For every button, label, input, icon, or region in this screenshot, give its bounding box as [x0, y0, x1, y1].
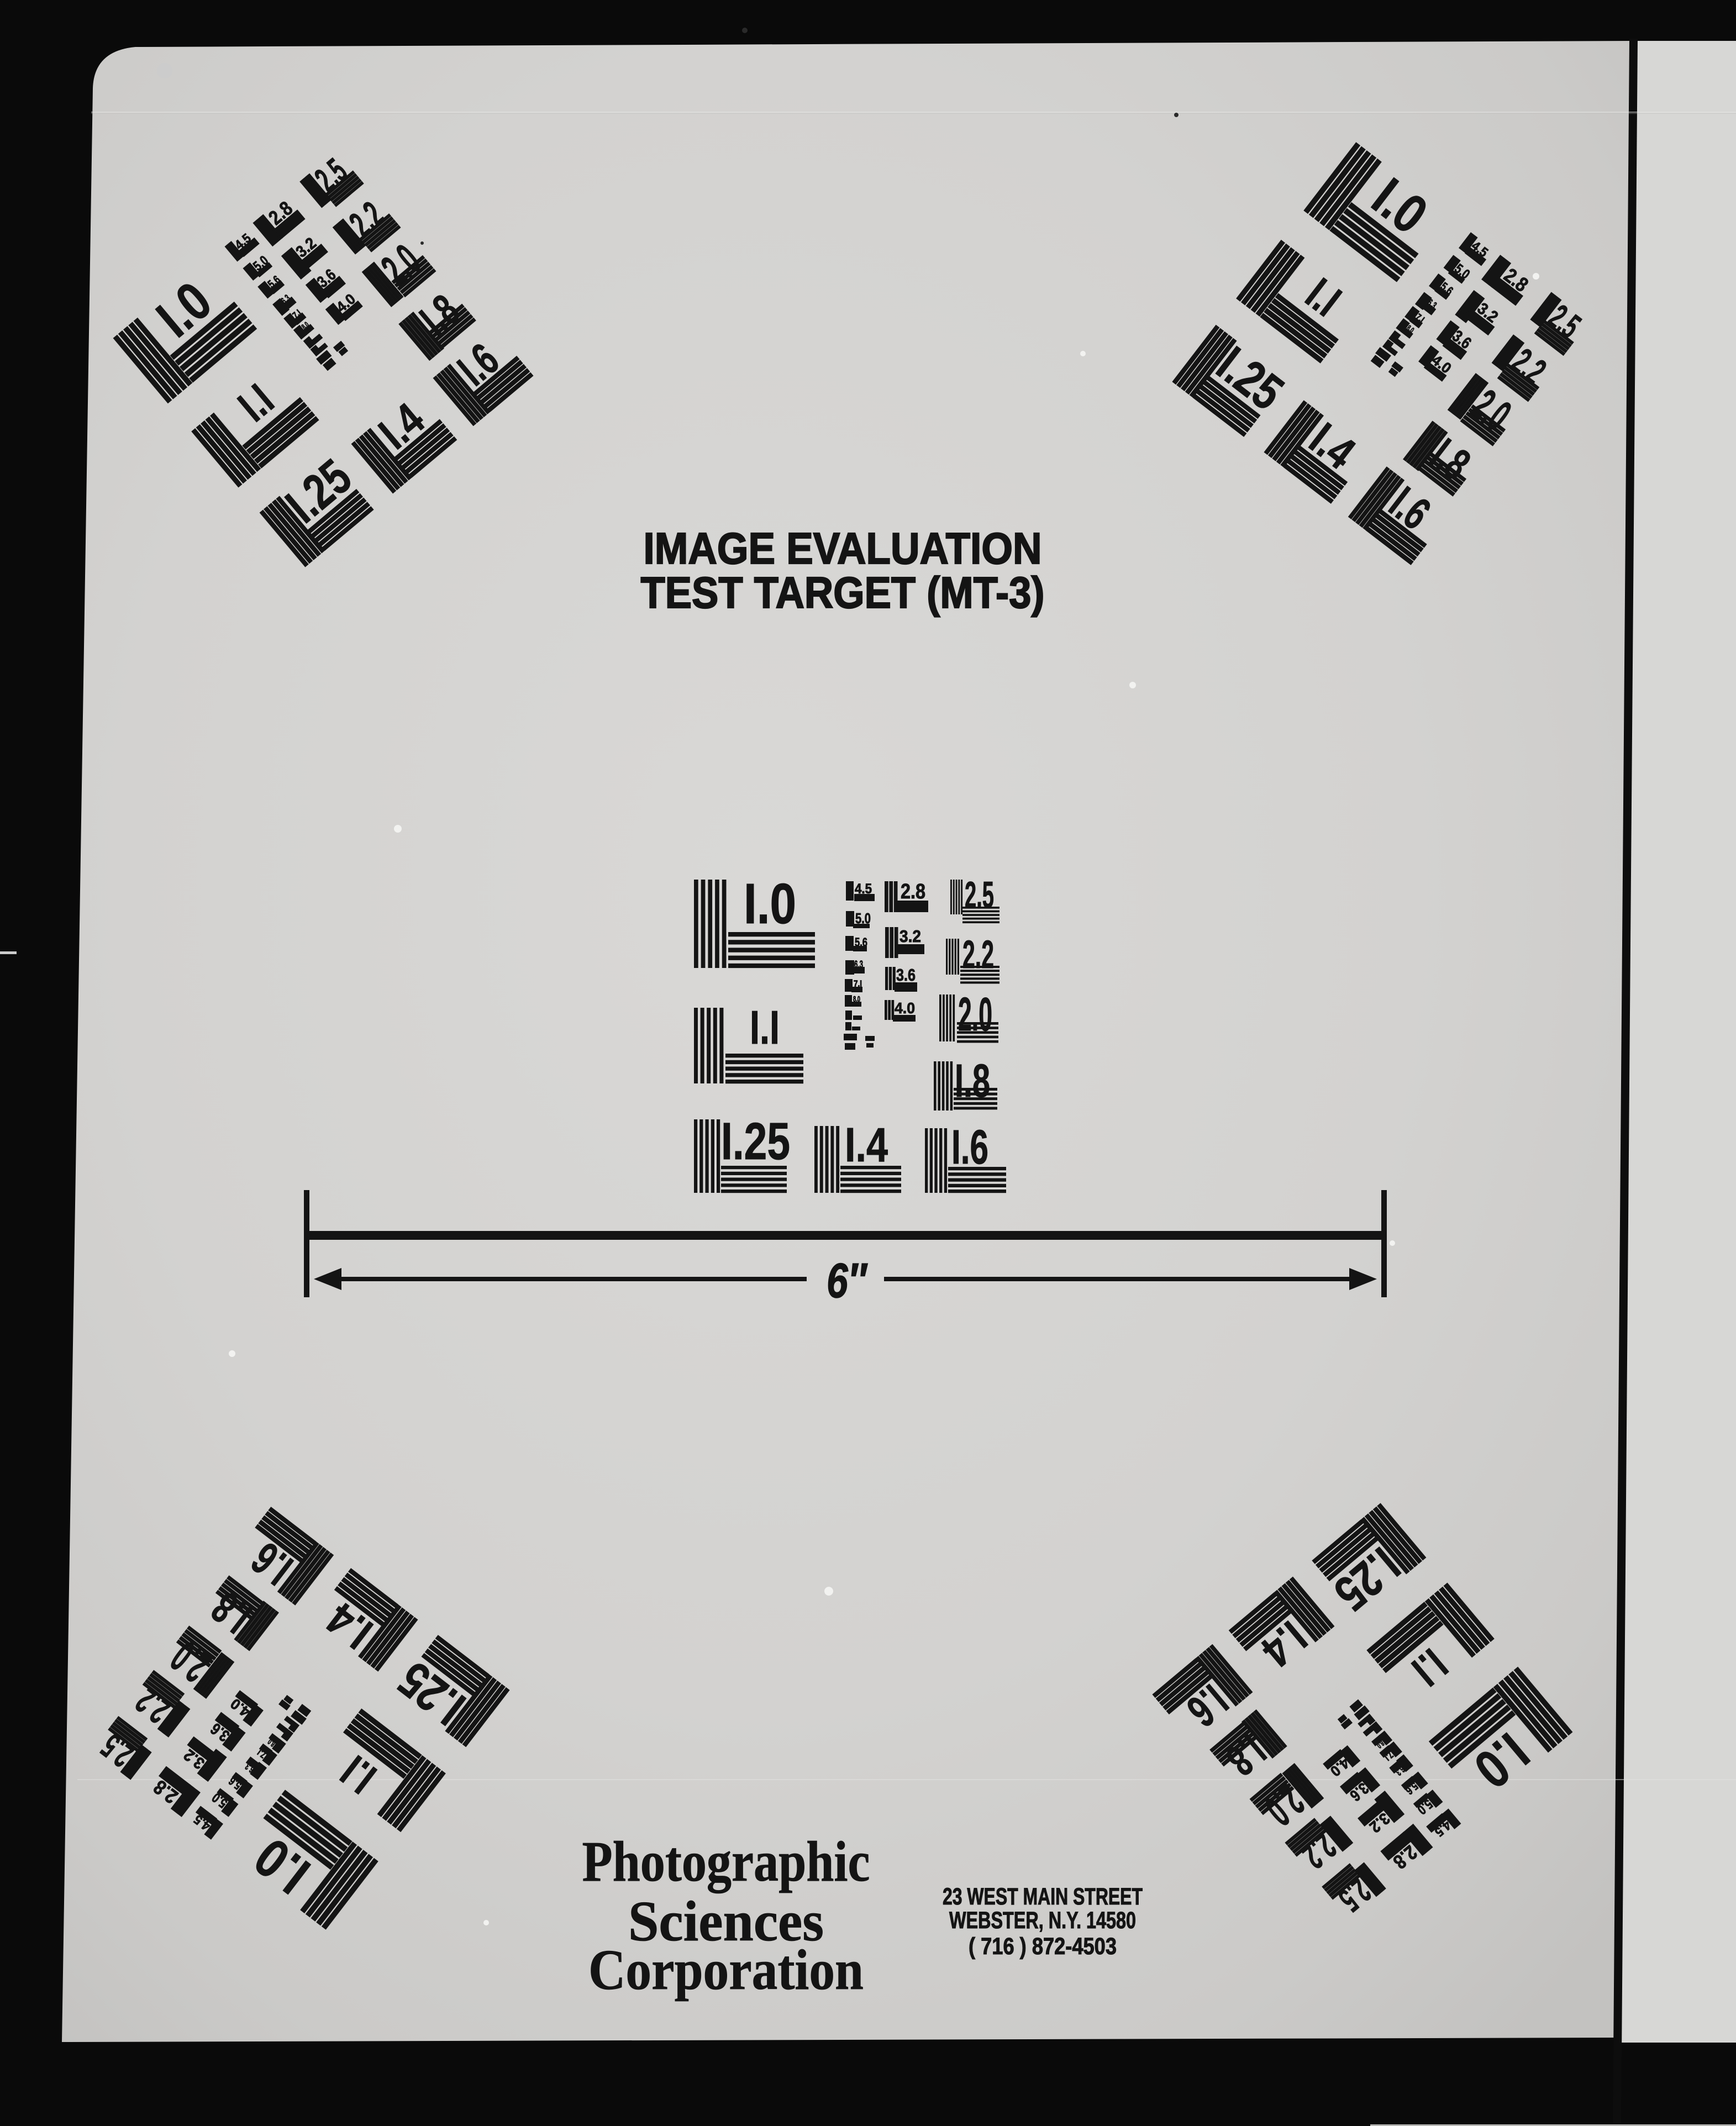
svg-text:WEBSTER, N.Y. 14580: WEBSTER, N.Y. 14580	[949, 1907, 1136, 1934]
svg-text:TEST TARGET (MT-3): TEST TARGET (MT-3)	[641, 568, 1045, 617]
svg-text:6″: 6″	[827, 1253, 868, 1308]
svg-text:IMAGE EVALUATION: IMAGE EVALUATION	[644, 524, 1042, 573]
svg-text:Corporation: Corporation	[588, 1938, 864, 2002]
svg-text:( 716 ) 872-4503: ( 716 ) 872-4503	[969, 1933, 1117, 1960]
svg-text:23 WEST MAIN STREET: 23 WEST MAIN STREET	[943, 1883, 1143, 1910]
svg-text:Photographic: Photographic	[582, 1830, 870, 1893]
